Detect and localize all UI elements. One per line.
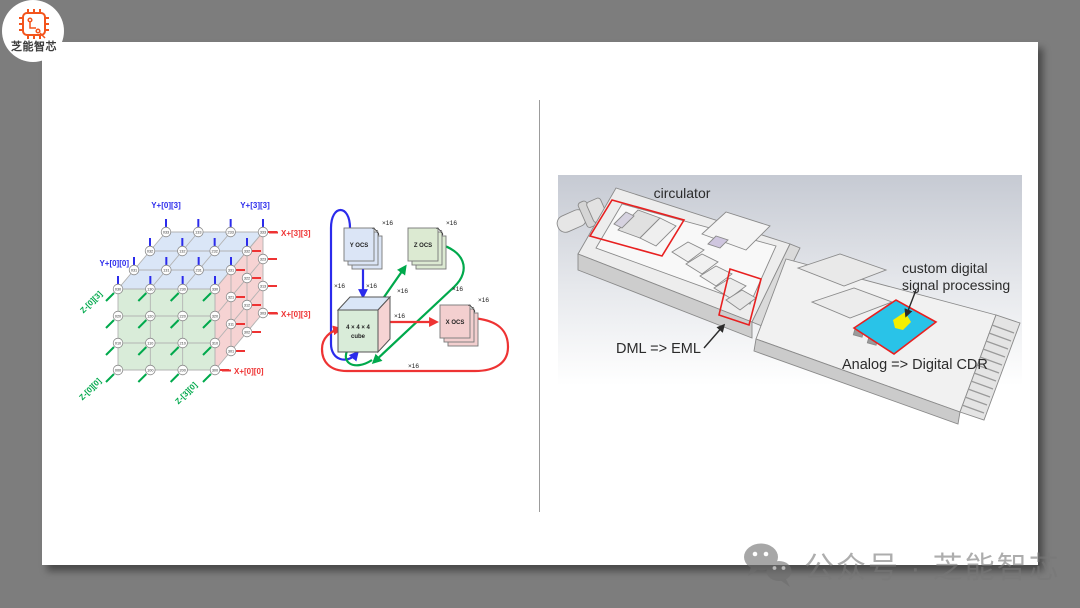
ocs-switch-label: Y OCS	[350, 243, 369, 249]
lattice-node-label: 020	[115, 314, 121, 318]
lattice-node-label: 110	[147, 341, 153, 345]
lattice-node-label: 232	[211, 249, 217, 253]
wechat-icon	[742, 542, 794, 588]
link-count-label: ×16	[334, 283, 345, 290]
lattice-node-label: 302	[244, 330, 250, 334]
axis-label: Y+[0][0]	[99, 259, 129, 268]
lattice-node-label: 200	[179, 368, 185, 372]
presentation-background: 0331332333330321322323320311312313310301…	[0, 0, 1080, 608]
lattice-node-label: 030	[115, 287, 121, 291]
lattice-node-label: 031	[131, 268, 137, 272]
lattice-node-label: 231	[195, 268, 201, 272]
cube-label: cube	[351, 334, 366, 340]
lattice-node-label: 332	[244, 249, 250, 253]
stack-count-label: ×16	[478, 297, 489, 304]
lattice-node-label: 323	[260, 257, 266, 261]
lattice-node-label: 210	[179, 341, 185, 345]
stack-count-label: ×16	[382, 220, 393, 227]
dml-label: DML => EML	[616, 341, 701, 357]
lattice-node-label: 131	[163, 268, 169, 272]
lattice-node-label: 132	[179, 249, 185, 253]
lattice-node-label: 130	[147, 287, 153, 291]
axis-label: Z-[3][0]	[173, 380, 199, 406]
link-count-label: ×16	[452, 286, 463, 293]
dsp-label-line2: signal processing	[902, 277, 1010, 293]
watermark-text: 公众号 · 芝能智芯	[804, 543, 1061, 587]
lattice-node-label: 120	[147, 314, 153, 318]
brand-logo: 芝能智芯	[2, 0, 70, 68]
lattice-node-label: 000	[115, 368, 121, 372]
lattice-node-label: 312	[244, 303, 250, 307]
lattice-node-label: 322	[244, 276, 250, 280]
axis-label: Z-[0][3]	[78, 289, 104, 315]
link-count-label: ×16	[408, 363, 419, 370]
lattice-node-label: 233	[227, 230, 233, 234]
axis-label: Y+[3][3]	[240, 201, 270, 210]
link-count-label: ×16	[366, 283, 377, 290]
ocs-wiring-figure: 4 × 4 × 4cubeY OCS}×16Z OCS}×16X OCS}×16…	[315, 193, 529, 397]
lattice-node-label: 310	[212, 341, 218, 345]
stack-count-label: ×16	[446, 220, 457, 227]
watermark: 公众号 · 芝能智芯	[742, 542, 1061, 588]
optical-module-figure: circulator custom digital signal process…	[556, 172, 1024, 428]
circulator-label: circulator	[654, 185, 711, 201]
lattice-node-label: 313	[260, 284, 266, 288]
lattice-node-label: 320	[212, 314, 218, 318]
lattice-node-label: 301	[228, 349, 234, 353]
lattice-node-label: 303	[260, 311, 266, 315]
lattice-node-label: 300	[212, 368, 218, 372]
lattice-node-label: 230	[179, 287, 185, 291]
dsp-label-line1: custom digital	[902, 260, 988, 276]
torus-lattice-figure: 0331332333330321322323320311312313310301…	[60, 190, 312, 427]
lattice-node-label: 100	[147, 368, 153, 372]
lattice-node-label: 331	[228, 268, 234, 272]
lattice-node-label: 133	[195, 230, 201, 234]
axis-label: X+[0][3]	[281, 310, 311, 319]
lattice-node-label: 330	[212, 287, 218, 291]
lattice-node-label: 033	[163, 230, 169, 234]
axis-label: Y+[0][3]	[151, 201, 181, 210]
link-count-label: ×16	[397, 288, 408, 295]
axis-label: X+[0][0]	[234, 367, 264, 376]
brand-name: 芝能智芯	[3, 38, 65, 54]
lattice-node-label: 220	[179, 314, 185, 318]
axis-label: X+[3][3]	[281, 229, 311, 238]
lattice-node-label: 333	[260, 230, 266, 234]
link-count-label: ×16	[394, 313, 405, 320]
cube-label: 4 × 4 × 4	[346, 325, 370, 331]
lattice-node-label: 321	[228, 295, 234, 299]
cdr-label: Analog => Digital CDR	[842, 357, 988, 373]
lattice-node-label: 311	[228, 322, 234, 326]
ocs-switch-label: X OCS	[446, 320, 465, 326]
axis-label: Z-[0][0]	[77, 376, 103, 402]
ocs-switch-label: Z OCS	[414, 243, 432, 249]
figure-divider	[539, 100, 540, 512]
lattice-node-label: 010	[115, 341, 121, 345]
lattice-node-label: 032	[147, 249, 153, 253]
